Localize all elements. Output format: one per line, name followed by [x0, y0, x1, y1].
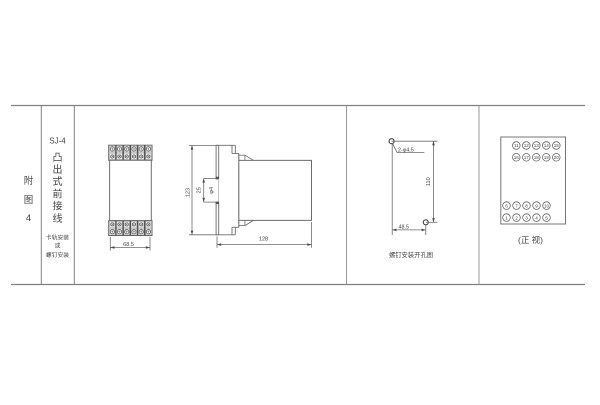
svg-text:2: 2: [515, 215, 518, 220]
svg-text:出: 出: [53, 163, 63, 176]
svg-text:(正 视): (正 视): [518, 235, 543, 245]
svg-text:123: 123: [185, 188, 191, 197]
svg-text:1: 1: [505, 215, 508, 220]
svg-text:9: 9: [535, 203, 538, 208]
svg-text:附: 附: [24, 175, 34, 187]
svg-text:25: 25: [196, 187, 202, 193]
svg-text:8: 8: [525, 203, 528, 208]
svg-text:17: 17: [524, 155, 530, 160]
svg-text:3: 3: [525, 215, 528, 220]
svg-text:4: 4: [535, 215, 538, 220]
svg-text:图: 图: [24, 195, 34, 206]
svg-text:螺钉安装: 螺钉安装: [46, 251, 69, 259]
svg-text:110: 110: [426, 177, 432, 186]
svg-text:48.5: 48.5: [399, 225, 410, 231]
svg-text:6: 6: [505, 203, 508, 208]
svg-text:接: 接: [53, 200, 63, 213]
svg-text:16: 16: [514, 155, 520, 160]
svg-text:5: 5: [545, 215, 548, 220]
svg-text:68.5: 68.5: [123, 242, 134, 248]
svg-text:线: 线: [53, 212, 63, 225]
svg-text:20: 20: [554, 155, 560, 160]
svg-text:4: 4: [26, 213, 31, 224]
svg-text:7: 7: [515, 203, 518, 208]
svg-text:2-φ4.5: 2-φ4.5: [398, 148, 414, 154]
svg-text:φ4: φ4: [209, 187, 215, 194]
svg-text:13: 13: [534, 143, 540, 148]
svg-text:14: 14: [544, 143, 550, 148]
svg-text:18: 18: [534, 155, 540, 160]
svg-text:螺钉安装开孔图: 螺钉安装开孔图: [389, 250, 433, 259]
svg-text:卡轨安装: 卡轨安装: [46, 234, 69, 242]
svg-text:12: 12: [524, 143, 530, 148]
svg-text:式: 式: [53, 175, 63, 188]
svg-text:或: 或: [55, 241, 61, 249]
svg-text:10: 10: [544, 203, 550, 208]
svg-text:SJ-4: SJ-4: [49, 137, 66, 146]
svg-text:19: 19: [544, 155, 550, 160]
svg-text:128: 128: [259, 236, 268, 242]
svg-text:15: 15: [554, 143, 560, 148]
svg-text:前: 前: [53, 187, 63, 200]
svg-text:凸: 凸: [53, 152, 63, 164]
svg-text:11: 11: [514, 143, 519, 148]
